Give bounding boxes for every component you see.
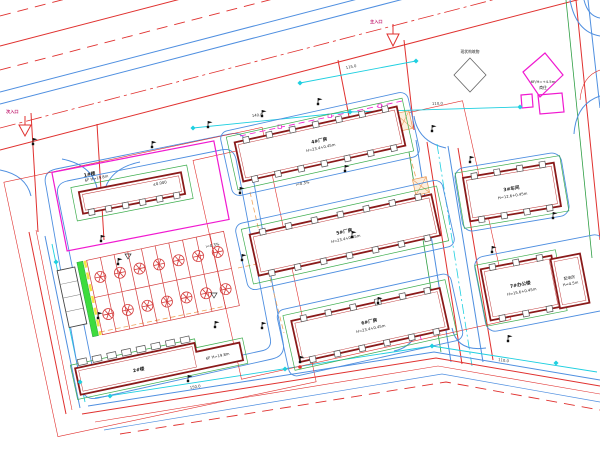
- dimension-node: [53, 259, 58, 264]
- dimension-node: [107, 393, 112, 398]
- dimension-node: [413, 58, 418, 63]
- column-bump: [344, 155, 351, 162]
- column-bump: [289, 126, 296, 133]
- structure-label: 现状构筑物: [461, 49, 480, 54]
- dimension-line: [300, 61, 416, 83]
- level-marker: [125, 254, 131, 259]
- column-bump: [320, 258, 327, 265]
- hydrant-marker: [214, 321, 220, 328]
- hydrant-base: [507, 340, 509, 342]
- tree-symbol: [160, 295, 173, 308]
- dimension-node: [190, 125, 195, 130]
- hydrant-base: [97, 317, 99, 319]
- column-bump: [350, 304, 357, 311]
- balcony-box: [151, 342, 161, 350]
- column-bump: [415, 194, 422, 201]
- column-bump: [298, 165, 305, 172]
- hydrant-base: [207, 126, 209, 128]
- column-bump: [251, 175, 258, 182]
- hydrant-flag: [98, 312, 103, 315]
- existing-building-outline: [521, 94, 533, 108]
- column-bump: [546, 205, 553, 212]
- dimension-node: [282, 366, 287, 371]
- curb-fillet: [414, 116, 446, 148]
- dimension-text: 110.0: [498, 357, 510, 363]
- column-bump: [390, 145, 397, 152]
- level-markers: [125, 254, 217, 298]
- hydrant-marker: [97, 312, 103, 319]
- balcony-box: [121, 348, 131, 356]
- column-bump: [285, 222, 292, 229]
- column-bump: [321, 160, 328, 167]
- column-bump: [546, 305, 553, 312]
- road-edge-line: [0, 0, 600, 46]
- hydrant-flag: [508, 335, 513, 338]
- column-bump: [424, 235, 431, 242]
- hydrant-base: [469, 161, 471, 163]
- tree-symbol: [102, 308, 115, 321]
- parking-stall-line: [114, 255, 130, 329]
- hydrant-marker: [261, 322, 267, 329]
- parking-stall-line: [155, 246, 171, 320]
- column-bump: [309, 356, 316, 363]
- building-5: 5#厂房 H=23.4+0.45m: [234, 179, 456, 291]
- column-bump: [539, 161, 546, 168]
- parking-stall-line: [100, 257, 116, 331]
- curb-fillet: [0, 170, 31, 196]
- column-bump: [383, 339, 390, 346]
- road-curb-line: [0, 0, 600, 92]
- column-bump: [300, 315, 307, 322]
- hydrant-flag: [262, 110, 267, 113]
- column-bump: [536, 254, 543, 261]
- tree-symbol: [113, 266, 126, 279]
- column-bump: [311, 217, 318, 224]
- landscape-line: [566, 0, 592, 258]
- column-bump: [494, 169, 501, 176]
- existing-building-outline: [538, 93, 564, 114]
- column-bump: [268, 269, 275, 276]
- column-bump: [359, 345, 366, 352]
- tree-symbol: [172, 254, 185, 267]
- column-bump: [337, 211, 344, 218]
- hydrant-marker: [431, 125, 437, 132]
- tree-symbol: [141, 299, 154, 312]
- existing-name: 商住: [539, 85, 547, 90]
- hydrant-base: [241, 259, 243, 261]
- road-entrance-west: 次入口: [0, 108, 140, 240]
- parking-stall-line: [141, 249, 157, 323]
- balcony-box: [77, 358, 87, 366]
- hydrant-flag: [118, 258, 123, 261]
- column-bump: [398, 240, 405, 247]
- slope-label: i=0.3%: [295, 179, 310, 187]
- hydrant-base: [100, 240, 102, 242]
- hydrant-marker: [469, 156, 475, 163]
- hydrant-flag: [470, 156, 475, 159]
- dimension-node: [297, 80, 302, 85]
- hydrant-flag: [242, 254, 247, 257]
- column-bump: [499, 315, 506, 322]
- balcony-box: [136, 345, 146, 353]
- road-lane-line: [0, 0, 600, 70]
- building-4: 4#厂房 H=23.4+0.45m: [219, 91, 421, 197]
- tree-symbol: [200, 287, 213, 300]
- column-bump: [243, 136, 250, 143]
- column-bump: [367, 150, 374, 157]
- tree-symbol: [153, 258, 166, 271]
- tree-symbol: [192, 250, 205, 263]
- entrance-arrow-head: [19, 125, 31, 136]
- hydrant-base: [32, 143, 34, 145]
- column-bump: [516, 165, 523, 172]
- hydrant-marker: [151, 141, 157, 148]
- column-bump: [471, 173, 478, 180]
- column-bump: [399, 293, 406, 300]
- entrance-main-label: 主入口: [370, 18, 383, 25]
- building-3: 3#车间 H=12.6+0.45m: [453, 152, 570, 233]
- dimension-text: 110.0: [432, 101, 444, 106]
- dimension-node: [553, 360, 558, 365]
- hydrant-flag: [215, 321, 220, 324]
- hydrant-base: [239, 192, 241, 194]
- site-plan-page: 次入口 主入口: [0, 0, 600, 450]
- hydrant-base: [377, 302, 379, 304]
- boundary-line: [36, 230, 72, 410]
- road-curb-line: [0, 0, 600, 104]
- column-bump: [501, 212, 508, 219]
- hydrant-flag: [208, 121, 213, 124]
- dimension-text: 115.0: [345, 63, 357, 70]
- column-bump: [139, 199, 146, 206]
- balcony-box: [165, 339, 175, 347]
- hydrant-base: [344, 170, 346, 172]
- existing-structure-diamond: [454, 58, 486, 92]
- tree-symbol: [133, 262, 146, 275]
- column-bump: [489, 264, 496, 271]
- hydrant-flag: [152, 141, 157, 144]
- parking-stall-line: [169, 243, 185, 317]
- hydrant-base: [431, 130, 433, 132]
- column-bump: [259, 228, 266, 235]
- column-bump: [266, 131, 273, 138]
- column-bump: [105, 205, 112, 212]
- road-east: [566, 0, 600, 258]
- hydrant-flag: [262, 322, 267, 325]
- existing-building-outline: [523, 53, 563, 97]
- hydrant-marker: [261, 110, 267, 117]
- road-edge-line: [31, 113, 38, 232]
- column-bump: [122, 202, 129, 209]
- column-bump: [478, 216, 485, 223]
- hydrant-base: [299, 361, 301, 363]
- hydrant-base: [151, 146, 153, 148]
- curb-fillet: [570, 0, 600, 36]
- tree-symbol: [121, 303, 134, 316]
- hydrant-marker: [117, 258, 123, 265]
- hydrant-base: [187, 380, 189, 382]
- hydrant-flag: [553, 212, 558, 215]
- column-bump: [424, 287, 431, 294]
- road-edge-line: [576, 0, 600, 240]
- column-bump: [294, 263, 301, 270]
- column-bump: [173, 192, 180, 199]
- hydrant-marker: [241, 254, 247, 261]
- existing-building: 6F/H=+4.5m 商住 现状构筑物: [454, 49, 564, 114]
- column-bump: [513, 259, 520, 266]
- hydrant-base: [317, 103, 319, 105]
- column-bump: [325, 309, 332, 316]
- column-bump: [382, 105, 389, 112]
- hydrant-flag: [432, 125, 437, 128]
- stair-annex: [412, 177, 429, 196]
- building-outline: [463, 163, 561, 222]
- tree-symbol: [180, 291, 193, 304]
- column-bump: [156, 195, 163, 202]
- column-bump: [88, 209, 95, 216]
- tree-symbol: [94, 270, 107, 283]
- column-bump: [433, 328, 440, 335]
- column-bump: [358, 111, 365, 118]
- hydrant-marker: [207, 121, 213, 128]
- hydrant-marker: [507, 335, 513, 342]
- utility-line: [100, 306, 226, 332]
- hydrant-base: [552, 217, 554, 219]
- column-bump: [363, 205, 370, 212]
- boundary-curb: [104, 374, 600, 430]
- road-centerline: [0, 0, 600, 128]
- tree-symbol: [219, 283, 232, 296]
- balcony-box: [107, 352, 117, 360]
- curb-fillet: [584, 0, 600, 18]
- column-bump: [408, 334, 415, 341]
- hydrant-flag: [318, 98, 323, 101]
- column-bump: [334, 350, 341, 357]
- site-plan-canvas: 次入口 主入口: [0, 0, 600, 450]
- hydrant-base: [491, 251, 493, 253]
- entrance-secondary-label: 次入口: [6, 108, 19, 115]
- building-outline: [235, 107, 406, 182]
- hydrant-marker: [187, 375, 193, 382]
- balcony-box: [92, 355, 102, 363]
- column-bump: [372, 246, 379, 253]
- existing-info: 6F/H=+4.5m: [531, 79, 556, 84]
- column-bump: [335, 116, 342, 123]
- column-bump: [524, 208, 531, 215]
- hydrant-flag: [492, 246, 497, 249]
- hydrant-base: [214, 326, 216, 328]
- hydrant-base: [117, 263, 119, 265]
- dimension-node: [429, 343, 434, 348]
- hydrant-marker: [552, 212, 558, 219]
- utility-box: [378, 104, 381, 107]
- column-bump: [346, 252, 353, 259]
- hydrant-marker: [32, 138, 38, 145]
- column-bump: [389, 199, 396, 206]
- hydrant-marker: [100, 235, 106, 242]
- column-bump: [312, 121, 319, 128]
- hydrant-base: [261, 115, 263, 117]
- entrance-arrow-head: [387, 34, 399, 46]
- balcony-box: [180, 336, 190, 344]
- hydrant-base: [261, 327, 263, 329]
- hydrant-marker: [317, 98, 323, 105]
- hydrant-base: [351, 236, 353, 238]
- column-bump: [522, 310, 529, 317]
- column-bump: [274, 170, 281, 177]
